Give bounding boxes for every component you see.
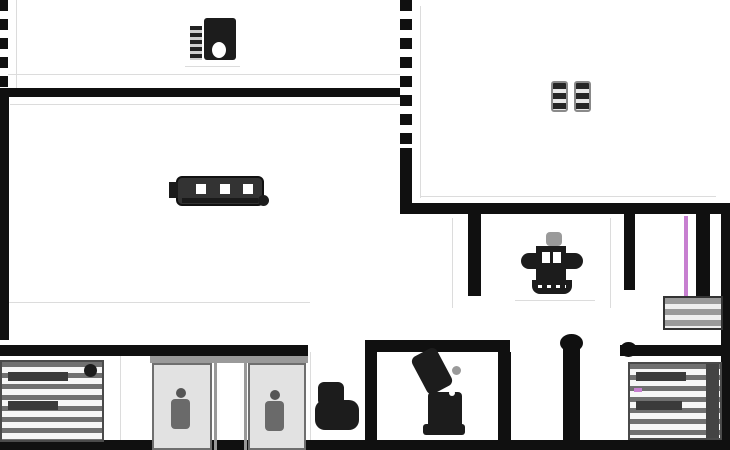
figure-head: [176, 388, 186, 398]
sink-basin: [536, 246, 566, 280]
wall-post-thick: [563, 337, 580, 450]
guide-line: [420, 196, 716, 197]
guide-line: [120, 352, 121, 450]
wall-end-cap: [620, 342, 637, 357]
floor-plan-canvas: [0, 0, 730, 450]
guide-line: [310, 352, 311, 450]
stool-icon: [574, 81, 591, 112]
stove-knob: [258, 195, 269, 206]
guide-line: [185, 66, 240, 67]
armchair-base: [423, 424, 465, 435]
wardrobe-top-rail: [150, 356, 308, 363]
guide-line: [515, 300, 595, 301]
shelf-icon: [663, 296, 723, 330]
sink-basin-inner: [553, 252, 561, 263]
figure-body: [171, 399, 190, 429]
wall-center: [400, 148, 412, 210]
guide-line: [420, 6, 421, 198]
wall-left-dashed: [0, 0, 8, 88]
stove-burner: [243, 184, 253, 194]
figure-head: [270, 390, 280, 400]
stove-bottom-band: [182, 198, 258, 203]
toilet-bowl: [315, 400, 359, 430]
stove-left-cap: [169, 182, 178, 198]
wall-horizontal-right: [400, 203, 730, 214]
guide-line: [0, 74, 412, 75]
wall-horizontal-upper: [0, 88, 412, 97]
wardrobe-rail: [244, 363, 247, 450]
bed-blanket-patch: [636, 401, 682, 410]
wall-closet-bar: [696, 214, 710, 300]
wall-lintel-bottom-middle: [365, 340, 510, 352]
wall-stub-right: [624, 214, 635, 290]
wardrobe-rail: [214, 363, 217, 450]
wall-post: [498, 352, 511, 450]
sewing-machine-notch: [212, 42, 226, 58]
armchair-detail: [449, 390, 455, 396]
stool-icon: [551, 81, 568, 112]
stove-burner: [220, 184, 230, 194]
sink-faucet: [546, 232, 562, 246]
wall-left: [0, 88, 9, 340]
guide-line: [10, 104, 402, 105]
sink-right-wing: [565, 253, 583, 269]
wall-lintel-bottom-left: [0, 345, 308, 356]
bed-side-rail: [706, 364, 719, 438]
figure-body: [265, 401, 284, 431]
wall-bottom: [0, 440, 730, 450]
wall-center-dashed: [400, 0, 412, 150]
wall-right: [721, 214, 730, 450]
bed-blanket-patch: [8, 401, 58, 410]
guide-line: [0, 302, 310, 303]
wall-post: [365, 340, 377, 450]
bed-blanket-patch: [636, 372, 686, 381]
pink-accent-line: [684, 216, 688, 300]
bed-accent-speck: [634, 388, 642, 392]
guide-line: [452, 218, 453, 308]
armchair-back: [410, 346, 454, 396]
guide-line: [610, 218, 611, 308]
bed-blanket-patch: [8, 372, 68, 381]
sink-basin-inner: [542, 252, 550, 263]
stove-burner: [196, 184, 206, 194]
wall-stub-left: [468, 214, 481, 296]
wall-end-cap: [560, 334, 583, 352]
bed-pillow-dot: [84, 364, 97, 377]
armchair-detail: [452, 366, 461, 375]
sink-base-ticks: [538, 285, 566, 288]
sewing-machine-column: [190, 26, 202, 60]
guide-line: [16, 0, 17, 88]
